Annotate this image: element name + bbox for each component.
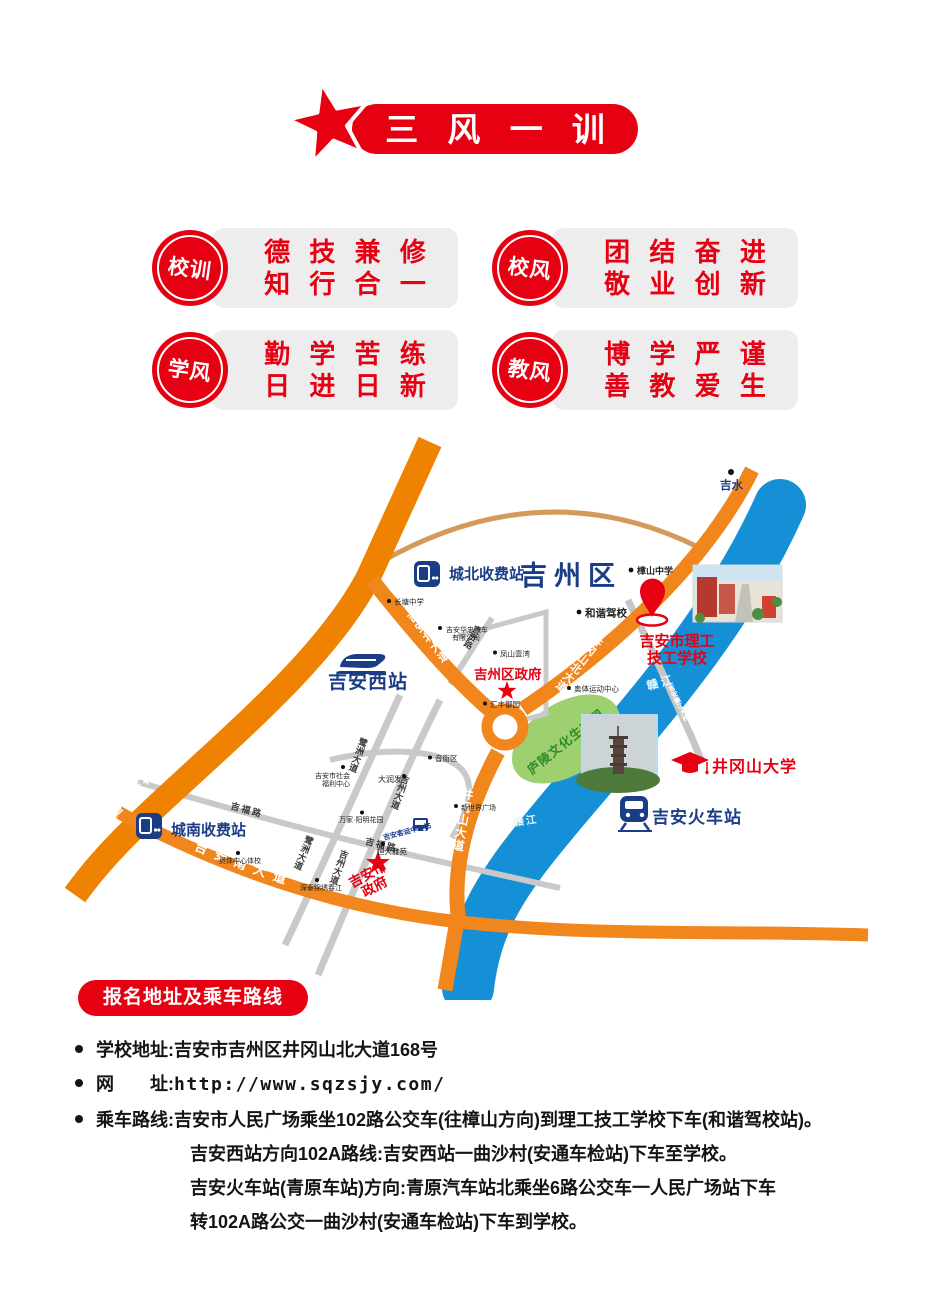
poi-dot [381, 842, 385, 846]
footer-section-title: 报名地址及乘车路线 [78, 980, 308, 1016]
graduation-cap-icon [671, 752, 709, 774]
study-style-line: 勤 学 苦 练 [212, 338, 458, 370]
poi-label: 长塘中学 [394, 597, 424, 607]
bullet-icon [75, 1115, 83, 1123]
svg-text:吉福路: 吉福路 [230, 800, 265, 819]
poi-dot [567, 686, 571, 690]
poi-dot [402, 774, 406, 778]
motto-line: 知 行 合 一 [212, 268, 458, 300]
poi-label: 深泰锦绣春江 [300, 883, 342, 892]
motto-card: 德 技 兼 修 知 行 合 一 [212, 228, 458, 308]
poi-label: 吉安华忠汽车 [446, 625, 488, 634]
zhangji-expressway [75, 442, 430, 895]
header-banner: 三 风 一 训 [0, 60, 950, 180]
teaching-style-seal: 教风 [492, 332, 568, 408]
west-station-label: 吉安西站 [328, 670, 408, 693]
district-gov-label: 吉州区政府 [474, 666, 542, 682]
toll-gate-icon [414, 561, 440, 587]
railway-station-label: 吉安火车站 [652, 807, 742, 827]
university-label: 井冈山大学 [712, 757, 797, 776]
study-style-seal-label: 学风 [166, 352, 214, 388]
route-text: 乘车路线:吉安市人民广场乘坐102路公交车(往樟山方向)到理工技工学校下车(和谐… [96, 1110, 822, 1130]
poi-label: 音街区 [435, 753, 458, 763]
website-url[interactable]: http://www.sqzsjy.com/ [174, 1074, 445, 1095]
school-spirit-card: 团 结 奋 进 敬 业 创 新 [552, 228, 798, 308]
teaching-style-line: 善 教 爱 生 [552, 370, 798, 402]
study-style-seal: 学风 [152, 332, 228, 408]
route-line-3: 吉安火车站(青原车站)方向:青原汽车站北乘坐6路公交车一人民广场站下车 [190, 1174, 776, 1200]
poi-label: 奥体中心体校 [219, 856, 261, 865]
highspeed-train-icon [338, 654, 386, 674]
poi-dot [483, 702, 487, 706]
toll-gate-icon [136, 813, 162, 839]
poi-dot [387, 599, 391, 603]
banner-title: 三 风 一 训 [385, 111, 615, 148]
poi-label: 万家·阳明花园 [339, 815, 383, 824]
star-icon [497, 681, 516, 699]
poi-label: 樟山中学 [636, 565, 673, 576]
pagoda-photo [576, 715, 660, 793]
poi-dot [236, 851, 240, 855]
address-text: 学校地址:吉安市吉州区井冈山北大道168号 [96, 1040, 438, 1060]
poi-dot [493, 651, 497, 655]
poi-dot [728, 469, 734, 475]
luzhou-avenue-label: 鹭洲大道 [291, 833, 315, 872]
school-photo [693, 565, 782, 623]
school-name-line2: 技工学校 [647, 649, 708, 667]
bullet-icon [75, 1079, 83, 1087]
poi-label: 有限公司 [452, 633, 480, 642]
poi-dot [341, 765, 345, 769]
poster-page: 三 风 一 训 德 技 兼 修 知 行 合 一 校训 团 结 奋 进 敬 业 创… [0, 0, 950, 1291]
poi-label: 吉安市社会 [315, 771, 350, 780]
poi-label: 和谐驾校 [584, 607, 627, 620]
school-spirit-line: 敬 业 创 新 [552, 268, 798, 300]
poi-dot [629, 568, 634, 573]
motto-seal: 校训 [152, 230, 228, 306]
teaching-style-seal-label: 教风 [506, 352, 554, 388]
poi-dot [428, 756, 432, 760]
poi-label: 新世界广场 [461, 803, 496, 812]
poi-label: 福利中心 [322, 779, 350, 788]
route-line-4: 转102A路公交一曲沙村(安通车检站)下车到学校。 [190, 1208, 587, 1234]
motto-seal-label: 校训 [166, 250, 214, 286]
study-style-card: 勤 学 苦 练 日 进 日 新 [212, 330, 458, 410]
toll-north-label: 城北收费站 [449, 565, 524, 583]
poi-label: 大润发 [378, 774, 402, 784]
school-spirit-seal-label: 校风 [506, 250, 554, 286]
website-label: 网 址: [96, 1074, 174, 1094]
route-line-2: 吉安西站方向102A路线:吉安西站一曲沙村(安通车检站)下车至学校。 [190, 1140, 737, 1166]
ring-road [374, 512, 700, 566]
district-label: 吉州区 [520, 561, 622, 591]
poi-dot [454, 804, 458, 808]
poi-label: 凤山壹湾 [500, 649, 530, 659]
teaching-style-card: 博 学 严 谨 善 教 爱 生 [552, 330, 798, 410]
toll-south-label: 城南收费站 [171, 821, 246, 839]
poi-label: 汇丰御园 [490, 699, 520, 709]
website-line: 网 址:http://www.sqzsjy.com/ [75, 1070, 445, 1096]
bus-center-label: 吉安客运中心站 [382, 821, 432, 842]
bullet-icon [75, 1045, 83, 1053]
study-style-line: 日 进 日 新 [212, 370, 458, 402]
school-spirit-seal: 校风 [492, 230, 568, 306]
address-line: 学校地址:吉安市吉州区井冈山北大道168号 [75, 1036, 438, 1062]
poi-dot [315, 878, 319, 882]
poi-label: 恒大雅苑 [377, 846, 407, 856]
poi-dot [577, 610, 582, 615]
jishui-label: 吉水 [720, 478, 743, 492]
train-station-icon [618, 796, 652, 831]
poi-label: 奥体运动中心 [574, 684, 619, 694]
school-spirit-line: 团 结 奋 进 [552, 236, 798, 268]
poi-dot [360, 811, 364, 815]
teaching-style-line: 博 学 严 谨 [552, 338, 798, 370]
route-line-1: 乘车路线:吉安市人民广场乘坐102路公交车(往樟山方向)到理工技工学校下车(和谐… [75, 1106, 822, 1132]
location-map: 樟吉高速 樟吉高速 吉安北大道 井冈山北大道 井冈山大道 鹭洲大道 鹭洲大道 吉… [0, 430, 950, 1000]
motto-line: 德 技 兼 修 [212, 236, 458, 268]
jifu-road-label: 吉福路 [230, 800, 265, 819]
poi-dot [438, 626, 442, 630]
school-name-line1: 吉安市理工 [639, 632, 714, 650]
